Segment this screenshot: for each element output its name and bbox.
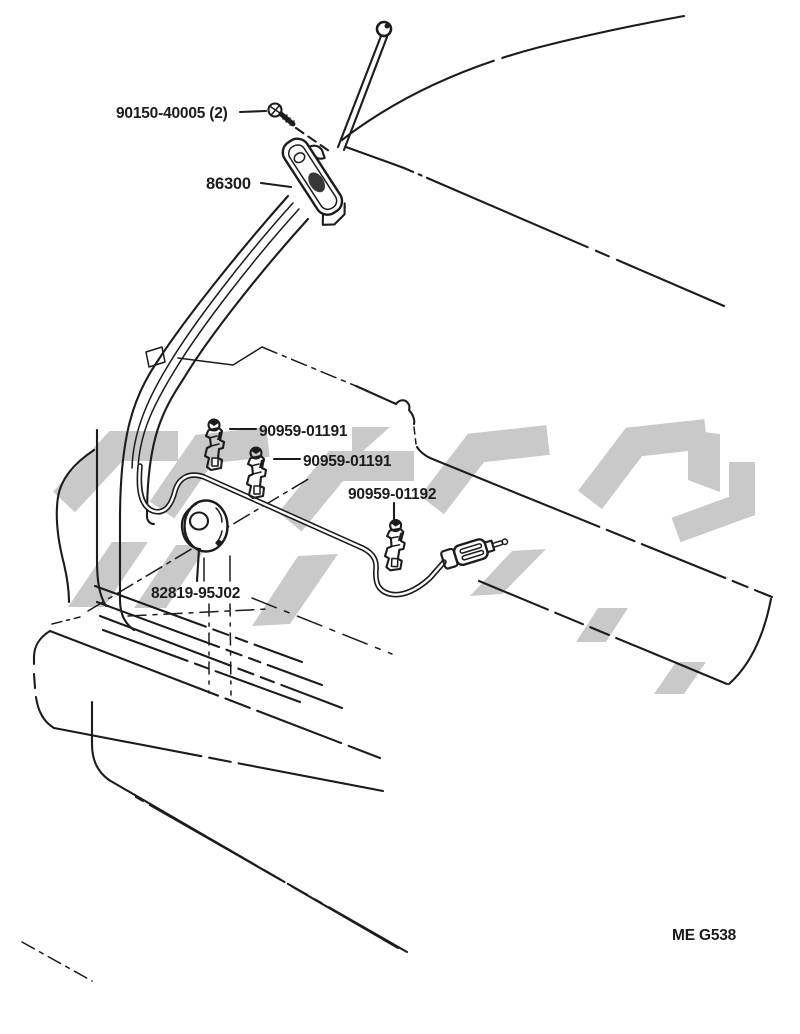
cowl-corner-line bbox=[356, 386, 396, 404]
hood-edge-dashline bbox=[404, 168, 724, 306]
part-label-screw: 90150-40005 (2) bbox=[116, 105, 228, 122]
part-label-antenna-assembly: 86300 bbox=[206, 175, 251, 193]
hood-edge-line bbox=[346, 147, 404, 168]
pillar-channel bbox=[120, 196, 308, 630]
fender-crease-lines bbox=[95, 586, 342, 708]
antenna-mast bbox=[338, 22, 391, 150]
cowl-dashdot-line bbox=[262, 347, 356, 386]
part-label-clamp-c: 90959-01192 bbox=[348, 486, 436, 503]
cowl-line bbox=[178, 347, 262, 365]
grommet bbox=[182, 501, 228, 552]
bumper bbox=[22, 617, 407, 981]
figure-code: ME G538 bbox=[672, 927, 737, 944]
screw-icon bbox=[269, 104, 295, 126]
cowl-tab bbox=[396, 400, 414, 424]
windshield-edge-line bbox=[342, 16, 684, 140]
part-label-clamp-a: 90959-01191 bbox=[259, 423, 348, 440]
tab-dashed-drop bbox=[414, 427, 416, 444]
mast-ball-tip bbox=[377, 22, 391, 36]
part-label-grommet: 82819-95J02 bbox=[151, 585, 240, 602]
parts-diagram-page: 90150-40005 (2) 86300 90959-01191 90959-… bbox=[0, 0, 800, 1034]
cable-clamp-c bbox=[384, 520, 406, 571]
arch-dashdot-line bbox=[128, 609, 268, 616]
antenna-parts-diagram: 90150-40005 (2) 86300 90959-01191 90959-… bbox=[0, 0, 800, 1034]
part-label-clamp-b: 90959-01191 bbox=[303, 453, 392, 470]
